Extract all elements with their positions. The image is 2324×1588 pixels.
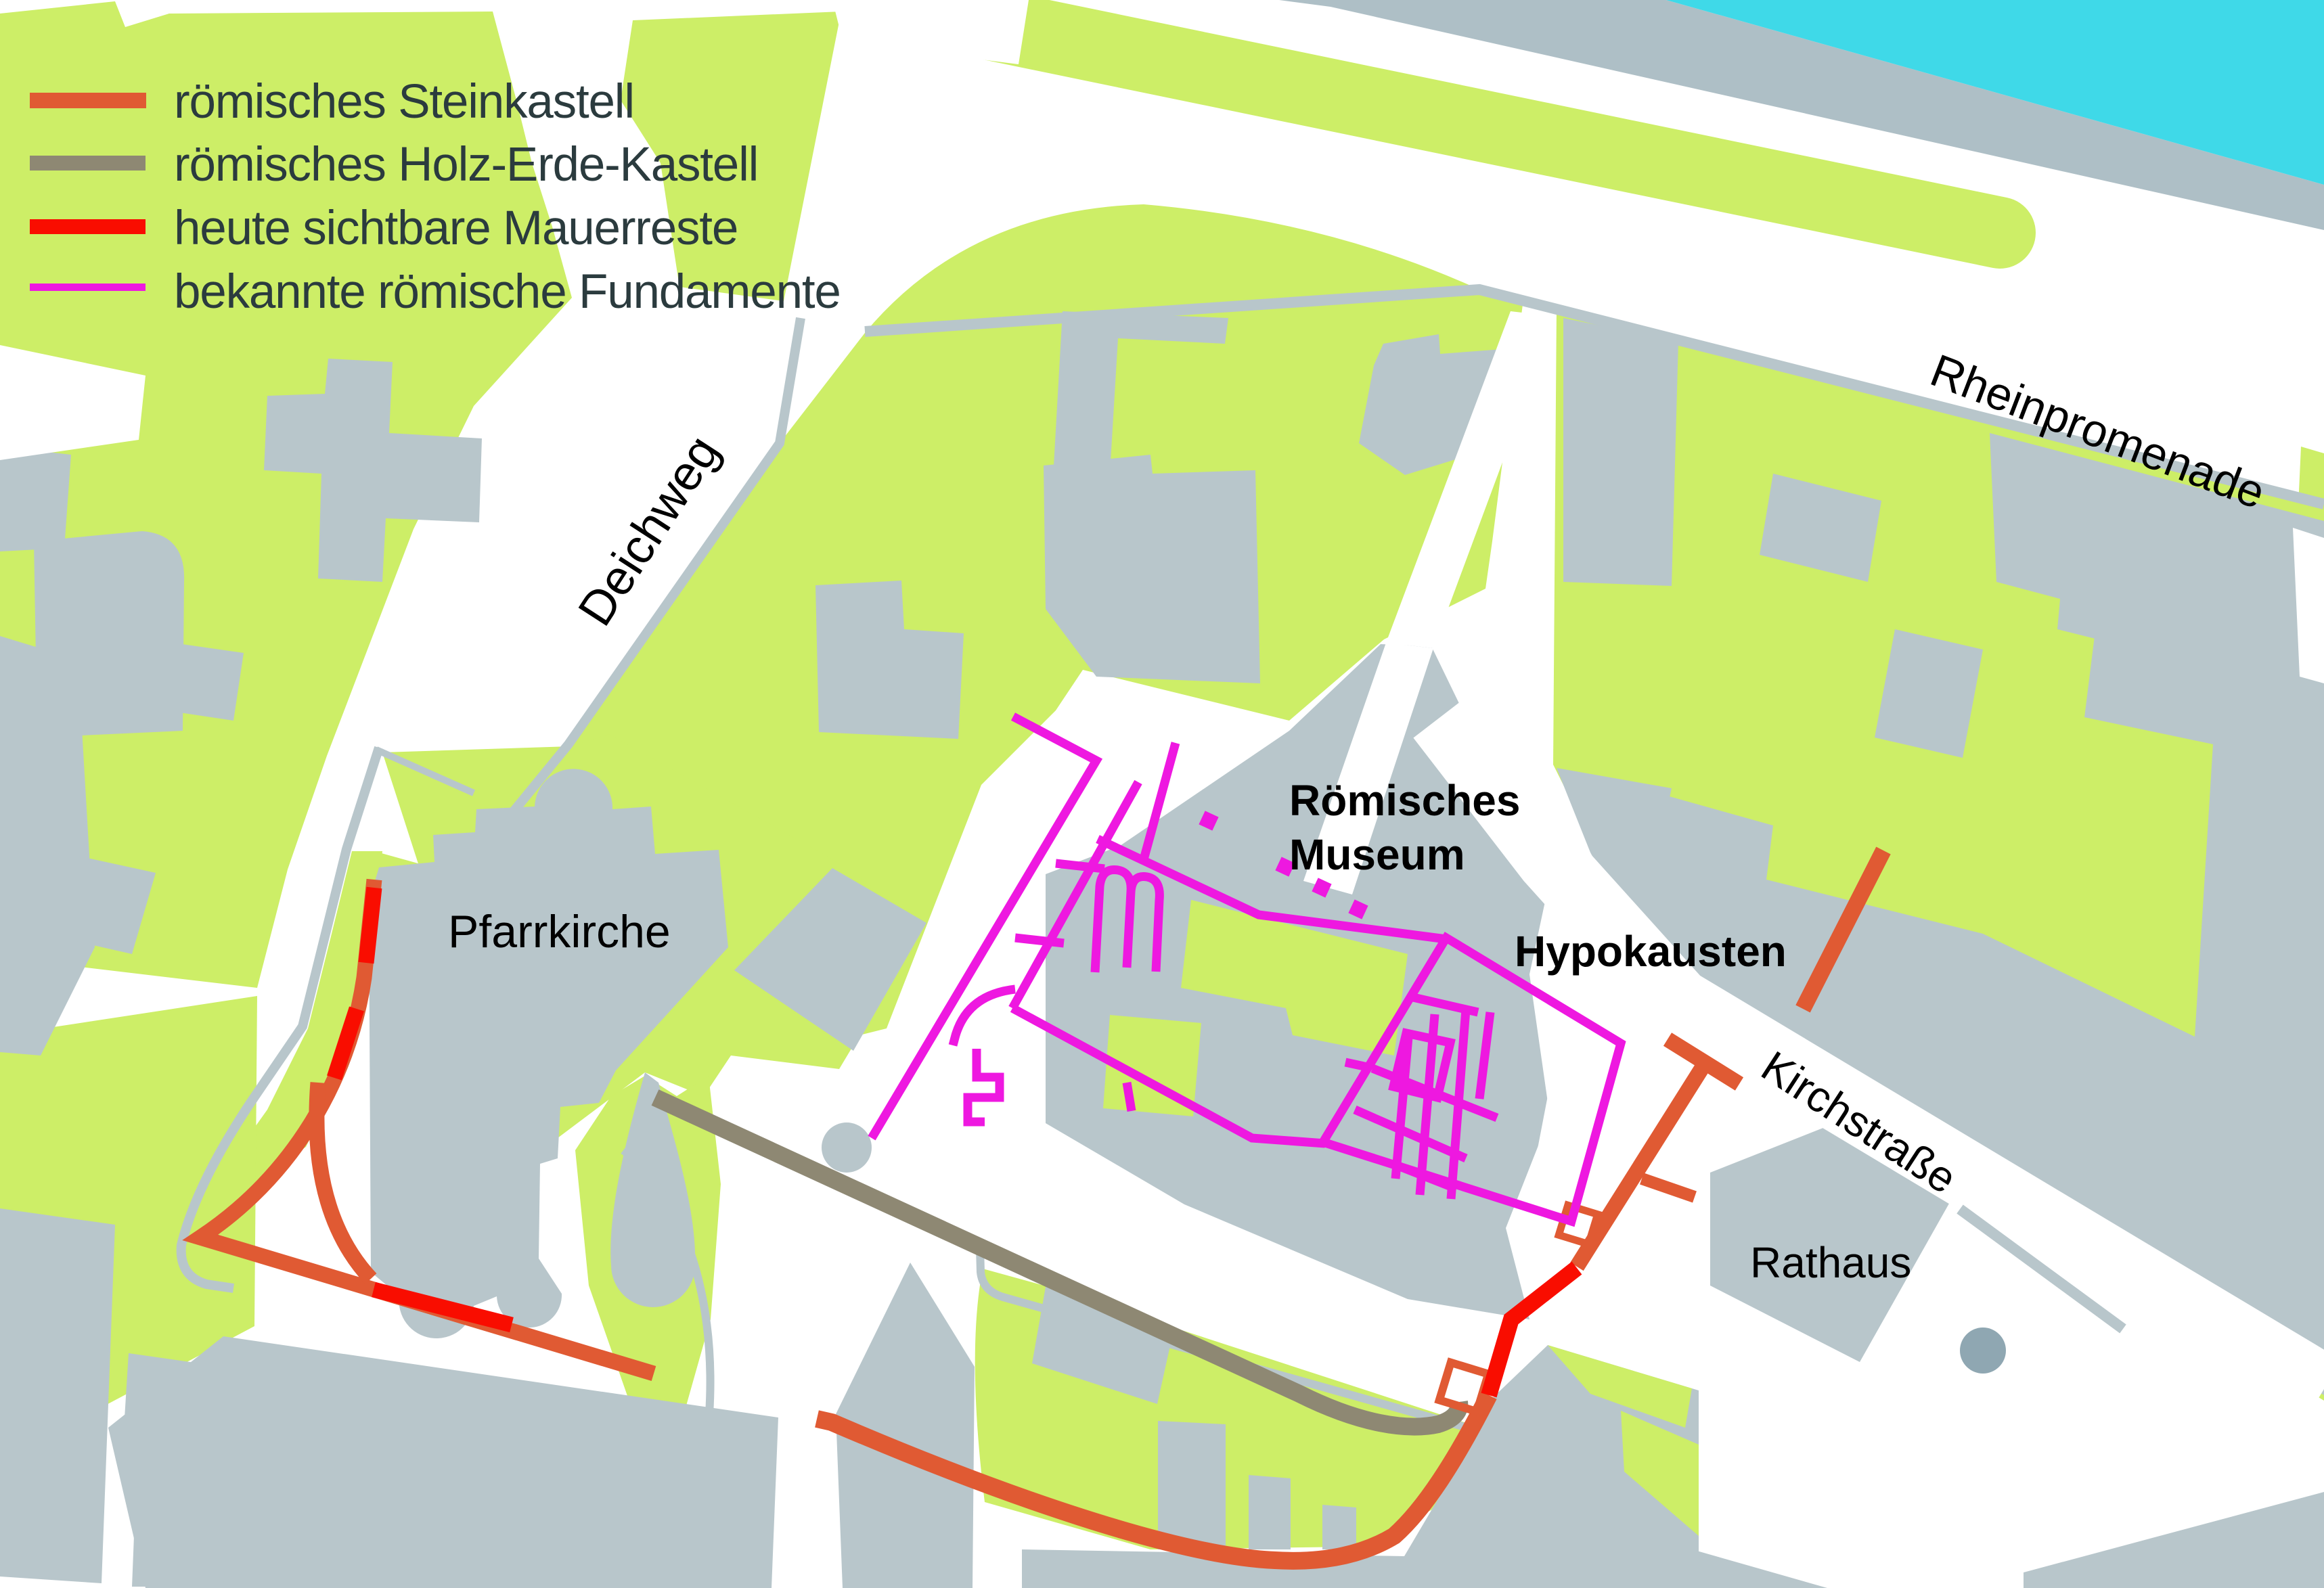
svg-text:Hypokausten: Hypokausten [1515, 927, 1787, 976]
svg-text:römisches Holz-Erde-Kastell: römisches Holz-Erde-Kastell [174, 138, 758, 191]
svg-text:römisches Steinkastell: römisches Steinkastell [174, 75, 634, 129]
svg-text:Römisches: Römisches [1289, 776, 1520, 825]
svg-text:Rathaus: Rathaus [1750, 1238, 1911, 1287]
svg-text:Museum: Museum [1289, 830, 1465, 879]
svg-text:Pfarrkirche: Pfarrkirche [448, 906, 671, 957]
svg-text:heute sichtbare Mauerreste: heute sichtbare Mauerreste [174, 202, 738, 255]
svg-text:bekannte römische Fundamente: bekannte römische Fundamente [174, 265, 841, 319]
